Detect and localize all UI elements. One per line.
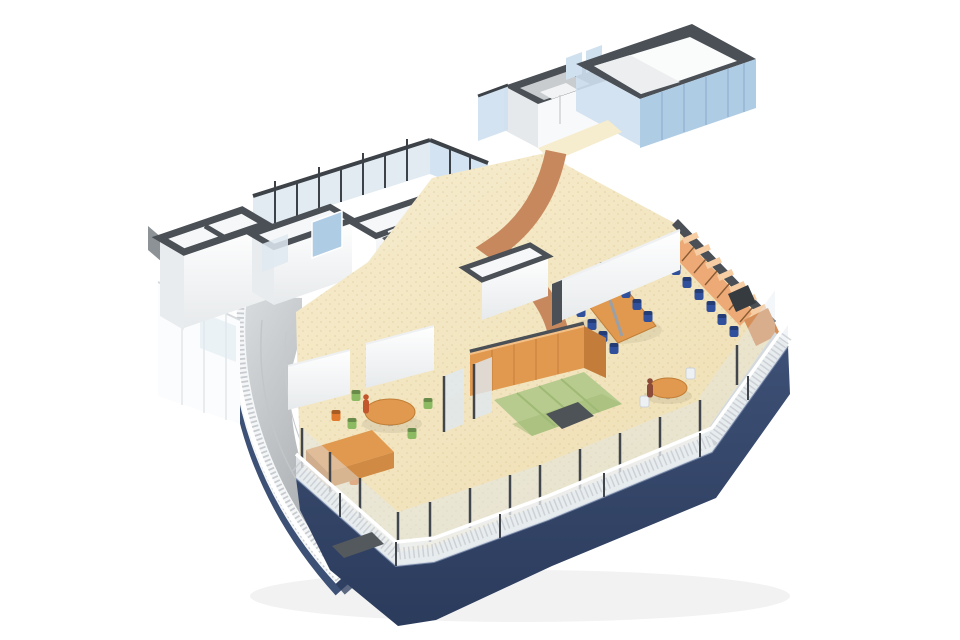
person-figure-reading-room <box>647 378 653 397</box>
nw-wall-end-cap <box>552 280 562 326</box>
glass-partition <box>444 368 464 432</box>
person-figure-meeting-room <box>363 394 369 413</box>
white-chair <box>686 368 695 379</box>
round-table <box>365 399 415 425</box>
glass-partition <box>474 357 492 419</box>
white-chair <box>640 396 649 407</box>
floor-plan-rendering <box>0 0 960 640</box>
roof-wedge <box>148 226 162 262</box>
round-table <box>649 378 687 398</box>
axonometric-floorplan-svg <box>0 0 960 640</box>
